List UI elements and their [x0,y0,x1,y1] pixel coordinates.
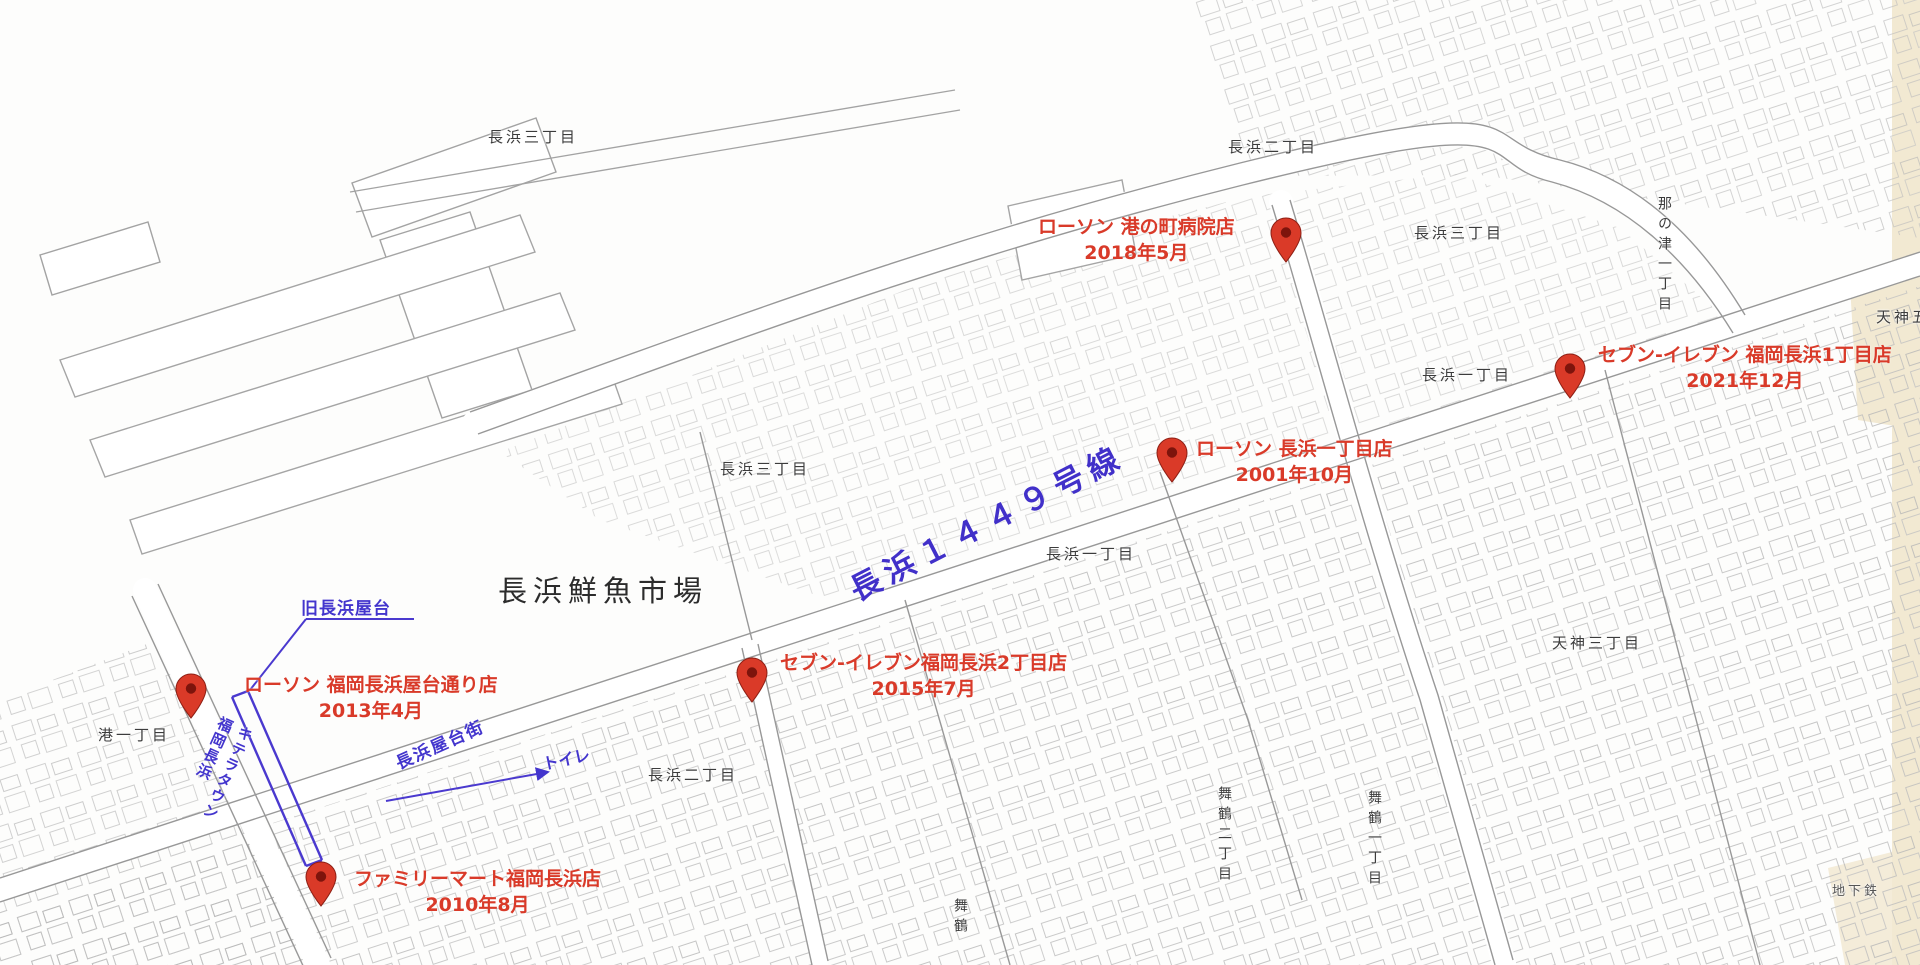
map-pin-icon [175,673,207,719]
map-pin-icon [736,657,768,703]
store-pin-seveneleven-nagahama1[interactable] [1554,353,1586,399]
district-label: 長浜三丁目 [720,458,810,479]
district-label: 天神五 [1876,306,1920,327]
district-label: 港一丁目 [98,724,170,745]
district-label: 長浜二丁目 [648,764,738,785]
fish-market-label: 長浜鮮魚市場 [498,568,708,610]
district-label: 長浜三丁目 [1414,222,1504,243]
store-open-date: 2001年10月 [1196,462,1393,488]
district-label: 天神三丁目 [1552,632,1642,653]
district-label: 長浜一丁目 [1422,364,1512,385]
store-label: ファミリーマート福岡長浜店 2010年8月 [354,866,601,918]
store-name: セブン-イレブン 福岡長浜1丁目店 [1598,342,1892,368]
store-open-date: 2013年4月 [244,698,498,724]
store-open-date: 2018年5月 [1038,240,1235,266]
district-label: 舞鶴一丁目 [1364,790,1384,920]
district-label: 舞鶴二丁目 [1214,786,1234,916]
store-label: ローソン 長浜一丁目店 2001年10月 [1196,436,1393,488]
store-pin-familymart-nagahama[interactable] [305,861,337,907]
store-pin-lawson-nagahama1[interactable] [1156,437,1188,483]
store-name: セブン-イレブン福岡長浜2丁目店 [780,650,1067,676]
store-open-date: 2015年7月 [780,676,1067,702]
store-label: セブン-イレブン福岡長浜2丁目店 2015年7月 [780,650,1067,702]
store-pin-lawson-yataidori[interactable] [175,673,207,719]
store-name: ローソン 福岡長浜屋台通り店 [244,672,498,698]
store-pin-lawson-minatonomachi[interactable] [1270,217,1302,263]
district-label: 長浜三丁目 [488,126,578,147]
old-yatai-label: 旧長浜屋台 [301,594,391,619]
store-label: セブン-イレブン 福岡長浜1丁目店 2021年12月 [1598,342,1892,394]
map-linework [0,0,1920,965]
store-label: ローソン 港の町病院店 2018年5月 [1038,214,1235,266]
district-label: 那の津一丁目 [1654,196,1674,346]
subway-label: 地下鉄 [1832,880,1880,899]
map-pin-icon [1156,437,1188,483]
store-pin-seveneleven-nagahama2[interactable] [736,657,768,703]
map-pin-icon [305,861,337,907]
district-label: 舞鶴 [950,898,970,965]
store-name: ファミリーマート福岡長浜店 [354,866,601,892]
district-label: 長浜一丁目 [1046,543,1136,564]
store-open-date: 2010年8月 [354,892,601,918]
district-label: 長浜二丁目 [1228,136,1318,157]
store-name: ローソン 港の町病院店 [1038,214,1235,240]
store-open-date: 2021年12月 [1598,368,1892,394]
map-canvas: 長浜三丁目 長浜二丁目 長浜三丁目 長浜一丁目 長浜三丁目 長浜一丁目 長浜二丁… [0,0,1920,965]
map-pin-icon [1554,353,1586,399]
store-label: ローソン 福岡長浜屋台通り店 2013年4月 [244,672,498,724]
map-pin-icon [1270,217,1302,263]
store-name: ローソン 長浜一丁目店 [1196,436,1393,462]
